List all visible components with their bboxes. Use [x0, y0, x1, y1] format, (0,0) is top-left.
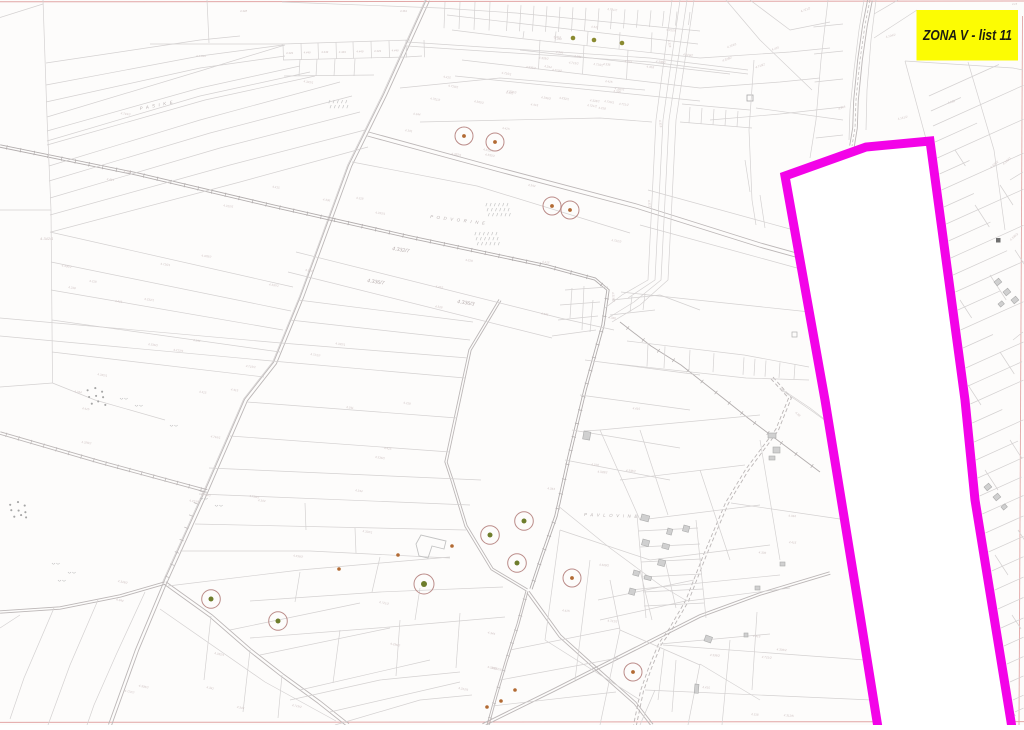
svg-text:4.15: 4.15: [1012, 2, 1018, 6]
svg-text:4.461: 4.461: [400, 9, 407, 13]
svg-text:4.448: 4.448: [240, 9, 247, 13]
svg-text:4.336: 4.336: [758, 550, 766, 555]
svg-text:4.449: 4.449: [304, 51, 311, 55]
svg-text:4.415: 4.415: [789, 540, 797, 545]
svg-text:4.449: 4.449: [286, 51, 293, 55]
svg-text:4.415: 4.415: [562, 608, 570, 613]
svg-text:4.449: 4.449: [339, 50, 346, 54]
svg-text:4.344: 4.344: [788, 514, 796, 519]
svg-text:4.449: 4.449: [374, 49, 381, 53]
svg-text:4.415: 4.415: [702, 685, 710, 690]
svg-text:4.344: 4.344: [547, 486, 555, 491]
svg-text:4.342/1: 4.342/1: [40, 236, 53, 241]
svg-text:4.318: 4.318: [591, 462, 599, 467]
svg-text:ZONA V - list 11: ZONA V - list 11: [922, 28, 1012, 44]
svg-text:4.318: 4.318: [751, 712, 759, 717]
svg-text:4.449: 4.449: [392, 49, 399, 53]
svg-text:4.415: 4.415: [753, 634, 761, 639]
svg-text:4.449: 4.449: [356, 49, 363, 53]
svg-text:4.449: 4.449: [321, 50, 328, 54]
svg-text:4.415: 4.415: [632, 406, 640, 411]
